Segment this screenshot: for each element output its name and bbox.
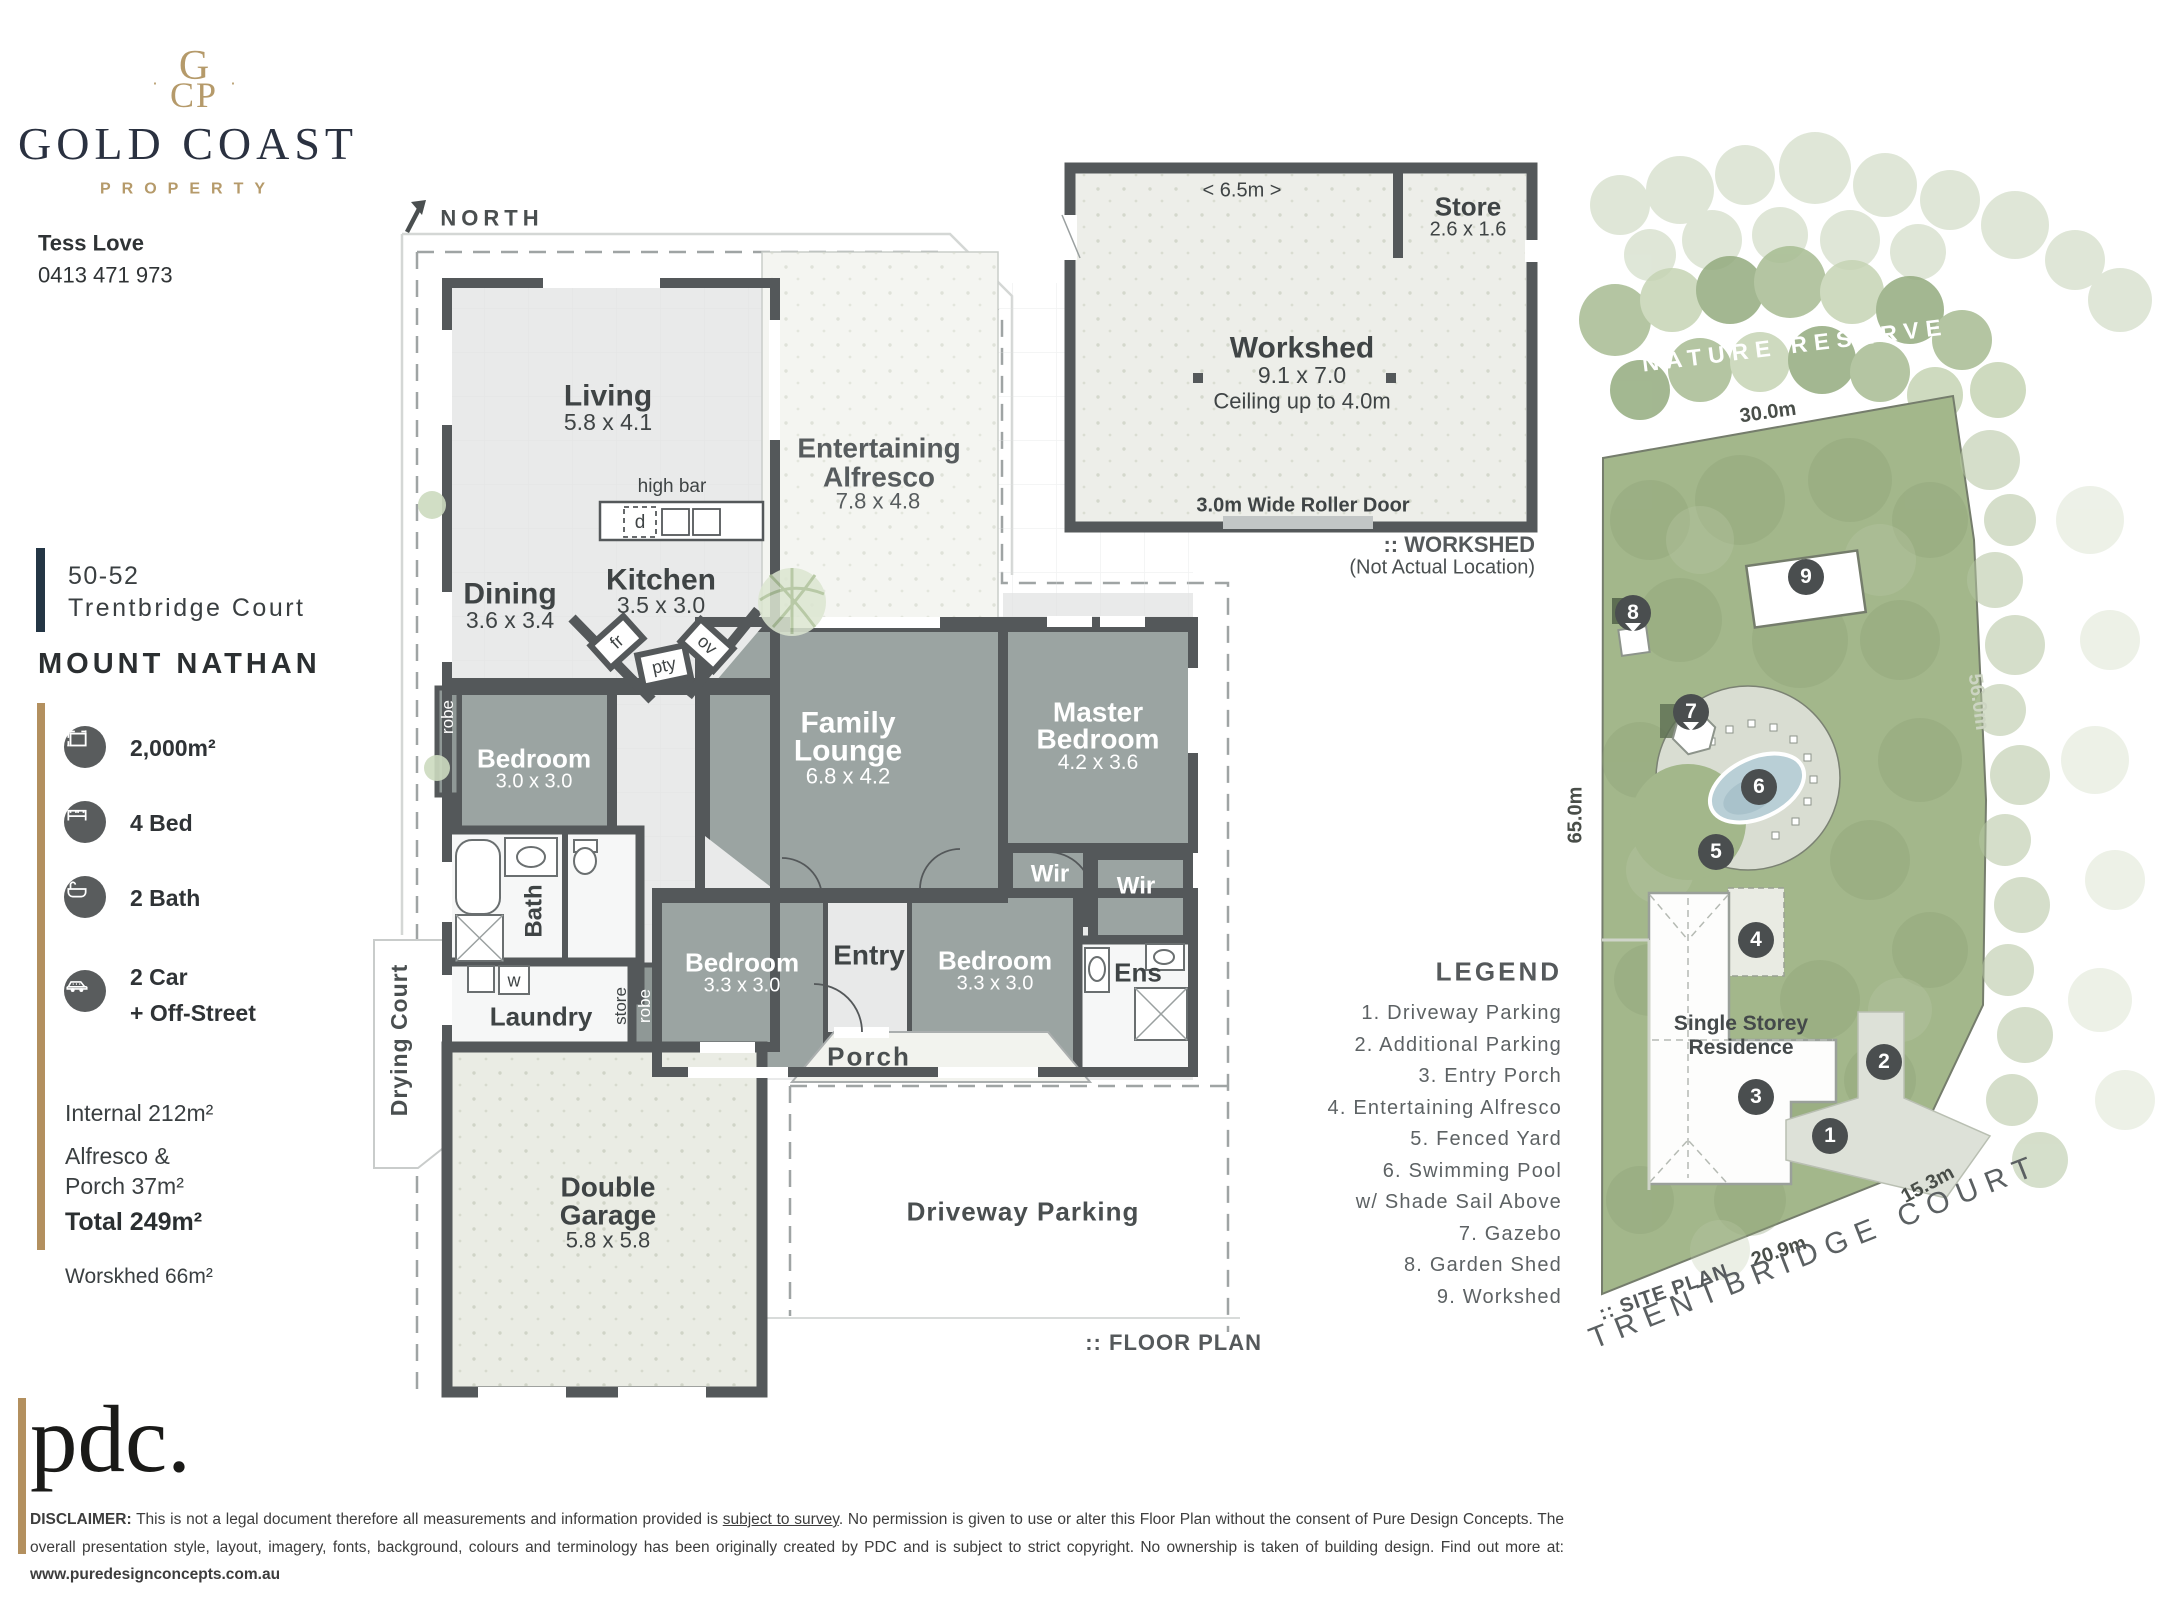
label-robe-1: robe — [439, 700, 457, 734]
legend-item: 1. Driveway Parking — [1062, 1002, 1562, 1025]
brand-name: GOLD COAST — [18, 120, 358, 168]
room-bedroom1: Bedroom — [477, 745, 591, 772]
room-wir-2: Wir — [1117, 873, 1155, 898]
address-number: 50-52 — [68, 563, 139, 589]
site-marker-1: 1 — [1812, 1118, 1848, 1154]
disclaimer-label: DISCLAIMER: — [30, 1511, 132, 1528]
label-residence-2: Residence — [1688, 1037, 1793, 1059]
feature-car: 2 Car — [130, 964, 188, 991]
workshed-store-dims: 2.6 x 1.6 — [1430, 220, 1507, 241]
label-washer: w — [508, 972, 521, 991]
room-garage-2: Garage — [560, 1200, 657, 1229]
room-master-1: Master — [1053, 697, 1143, 726]
workshed-roller-door: 3.0m Wide Roller Door — [1196, 496, 1409, 517]
workshed-width: < 6.5m > — [1203, 181, 1282, 202]
site-marker-2: 2 — [1866, 1044, 1902, 1080]
brand-monogram-bottom: CP — [170, 77, 218, 115]
measure-65m: 65.0m — [1566, 787, 1587, 844]
room-laundry: Laundry — [490, 1003, 593, 1030]
palm-tree — [758, 568, 826, 636]
address-accent-bar — [36, 548, 45, 632]
features-accent-bar — [37, 703, 45, 1250]
floor-plan-caption: :: FLOOR PLAN — [1085, 1330, 1262, 1356]
area-alfresco-2: Porch 37m² — [65, 1174, 184, 1198]
site-marker-6: 6 — [1741, 769, 1777, 805]
legend-item: 8. Garden Shed — [1062, 1254, 1562, 1277]
legend-item: 2. Additional Parking — [1062, 1034, 1562, 1057]
label-robe-2: robe — [636, 989, 654, 1023]
room-porch: Porch — [827, 1043, 911, 1070]
feature-bath: 2 Bath — [130, 885, 200, 912]
land-area-icon — [64, 726, 106, 768]
room-family-dims: 6.8 x 4.2 — [806, 764, 890, 787]
label-drying-court: Drying Court — [387, 964, 411, 1117]
room-bedroom1-dims: 3.0 x 3.0 — [496, 772, 573, 793]
pdc-logo: pdc. — [30, 1392, 191, 1487]
disclaimer-text-1: This is not a legal document therefore a… — [132, 1511, 723, 1528]
room-wir-1: Wir — [1031, 861, 1069, 886]
legend-item: 3. Entry Porch — [1062, 1065, 1562, 1088]
area-total: Total 249m² — [65, 1209, 202, 1235]
room-alfresco-1: Entertaining — [797, 433, 960, 462]
monogram-dot-right: · — [230, 74, 236, 93]
feature-bed: 4 Bed — [130, 810, 193, 837]
room-bath: Bath — [521, 884, 546, 937]
workshed-caption-sub: (Not Actual Location) — [1349, 557, 1535, 580]
bath-icon — [64, 876, 106, 918]
workshed-caption: :: WORKSHED — [1383, 532, 1535, 558]
room-bedroom2-dims: 3.3 x 3.0 — [704, 976, 781, 997]
site-marker-4: 4 — [1738, 922, 1774, 958]
legend-list: 1. Driveway Parking 2. Additional Parkin… — [1062, 1002, 1562, 1317]
legend-item: 9. Workshed — [1062, 1286, 1562, 1309]
north-label: NORTH — [440, 206, 543, 229]
legend-title: LEGEND — [1436, 957, 1562, 988]
feature-land: 2,000m² — [130, 735, 216, 762]
label-residence-1: Single Storey — [1674, 1013, 1808, 1035]
room-alfresco-dims: 7.8 x 4.8 — [836, 489, 920, 512]
address-street: Trentbridge Court — [68, 595, 306, 621]
room-master-2: Bedroom — [1037, 724, 1160, 753]
label-store: store — [612, 987, 630, 1025]
address-suburb: MOUNT NATHAN — [38, 649, 321, 679]
site-marker-7: 7 — [1673, 694, 1709, 730]
area-internal: Internal 212m² — [65, 1101, 213, 1125]
room-master-dims: 4.2 x 3.6 — [1058, 752, 1139, 774]
plan-graphics — [0, 0, 2160, 1620]
site-marker-8: 8 — [1615, 595, 1651, 631]
room-bedroom2: Bedroom — [685, 949, 799, 976]
room-entry: Entry — [833, 940, 905, 969]
legend-item: 4. Entertaining Alfresco — [1062, 1097, 1562, 1120]
area-workshed: Worskhed 66m² — [65, 1266, 213, 1288]
room-bedroom3: Bedroom — [938, 947, 1052, 974]
room-dining-dims: 3.6 x 3.4 — [466, 608, 554, 632]
area-alfresco-1: Alfresco & — [65, 1144, 170, 1168]
legend-item: 5. Fenced Yard — [1062, 1128, 1562, 1151]
agent-name: Tess Love — [38, 231, 144, 254]
brand-tagline: PROPERTY — [100, 182, 276, 199]
room-family-2: Lounge — [794, 735, 902, 767]
legend-item: 7. Gazebo — [1062, 1223, 1562, 1246]
feature-car-extra: + Off-Street — [130, 1000, 256, 1027]
room-bedroom3-dims: 3.3 x 3.0 — [957, 974, 1034, 995]
monogram-dot-left: · — [152, 74, 158, 93]
legend-item: 6. Swimming Pool — [1062, 1160, 1562, 1183]
bed-icon — [64, 801, 106, 843]
car-icon — [64, 970, 106, 1012]
room-kitchen-dims: 3.5 x 3.0 — [617, 593, 705, 617]
room-garage-dims: 5.8 x 5.8 — [566, 1228, 650, 1251]
workshed-dims: 9.1 x 7.0 — [1258, 363, 1346, 387]
disclaimer-underlined: subject to survey — [723, 1511, 839, 1528]
site-plan-graphic — [1579, 132, 2155, 1294]
footer-accent-bar — [18, 1398, 26, 1554]
site-marker-9: 9 — [1788, 559, 1824, 595]
room-alfresco-2: Alfresco — [823, 462, 935, 491]
site-marker-5: 5 — [1698, 834, 1734, 870]
north-arrow-icon — [407, 200, 426, 232]
workshed-store: Store — [1435, 193, 1501, 220]
label-high-bar: high bar — [638, 477, 707, 497]
room-living: Living — [564, 380, 652, 412]
site-marker-3: 3 — [1738, 1079, 1774, 1115]
flyer-page: G CP · · GOLD COAST PROPERTY Tess Love 0… — [0, 0, 2160, 1620]
room-living-dims: 5.8 x 4.1 — [564, 410, 652, 434]
room-ens: Ens — [1114, 959, 1162, 986]
agent-phone: 0413 471 973 — [38, 263, 173, 286]
workshed-ceiling: Ceiling up to 4.0m — [1213, 389, 1390, 412]
label-dishwasher: d — [635, 513, 646, 533]
disclaimer: DISCLAIMER: This is not a legal document… — [30, 1506, 1564, 1589]
room-dining: Dining — [463, 578, 556, 610]
workshed-name: Workshed — [1230, 332, 1374, 364]
disclaimer-url: www.puredesignconcepts.com.au — [30, 1566, 280, 1583]
room-garage-1: Double — [561, 1172, 656, 1201]
legend-item: w/ Shade Sail Above — [1062, 1191, 1562, 1214]
